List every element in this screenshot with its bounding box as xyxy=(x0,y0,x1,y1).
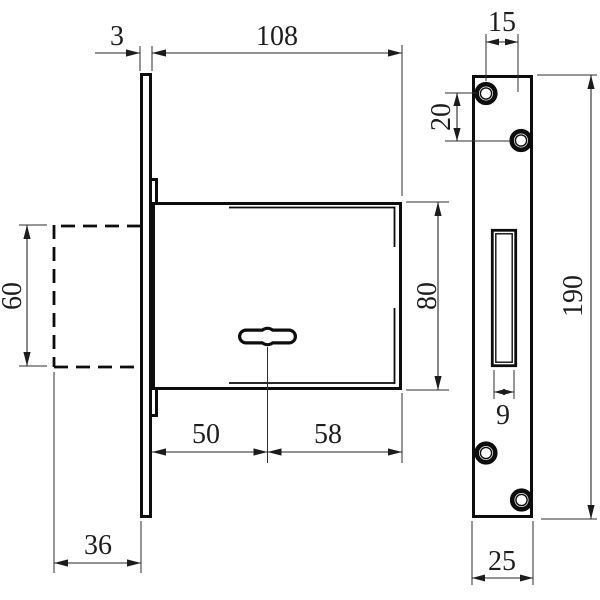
dim-plate-width: 25 xyxy=(472,521,533,585)
dim-label-25: 25 xyxy=(488,546,516,577)
lock-side-view xyxy=(54,75,401,517)
dim-body-length: 108 xyxy=(152,21,402,196)
dim-body-height: 80 xyxy=(406,202,449,390)
dim-label-3: 3 xyxy=(110,21,124,52)
dim-plate-height: 190 xyxy=(537,75,597,519)
faceplate-edge xyxy=(142,75,151,517)
technical-drawing-canvas: 3 108 60 80 xyxy=(0,0,600,600)
mortise-lock-drawing: 3 108 60 80 xyxy=(0,0,600,600)
screw-hole-lower-left xyxy=(477,444,496,463)
dim-label-58: 58 xyxy=(314,419,342,450)
recess-dashed-outline xyxy=(54,225,141,367)
screw-hole-bottom-right xyxy=(512,491,531,510)
dim-label-50: 50 xyxy=(192,419,220,450)
strike-plate-front-view xyxy=(474,77,532,517)
screw-hole-upper-right xyxy=(512,131,531,150)
lock-case-body xyxy=(154,204,401,389)
dim-recess-height: 60 xyxy=(0,225,47,366)
dim-label-190: 190 xyxy=(558,275,589,317)
dim-label-20: 20 xyxy=(426,103,457,131)
dim-recess-depth: 36 xyxy=(54,372,141,573)
dim-label-15: 15 xyxy=(488,7,516,38)
dim-label-80: 80 xyxy=(412,282,443,310)
screw-hole-top-left xyxy=(477,84,496,103)
dim-label-9: 9 xyxy=(496,400,510,431)
dim-faceplate-thickness: 3 xyxy=(95,21,152,71)
dim-label-36: 36 xyxy=(84,530,112,561)
dim-label-60: 60 xyxy=(0,282,28,310)
dim-label-108: 108 xyxy=(256,21,298,52)
keyhole-icon xyxy=(238,327,297,347)
